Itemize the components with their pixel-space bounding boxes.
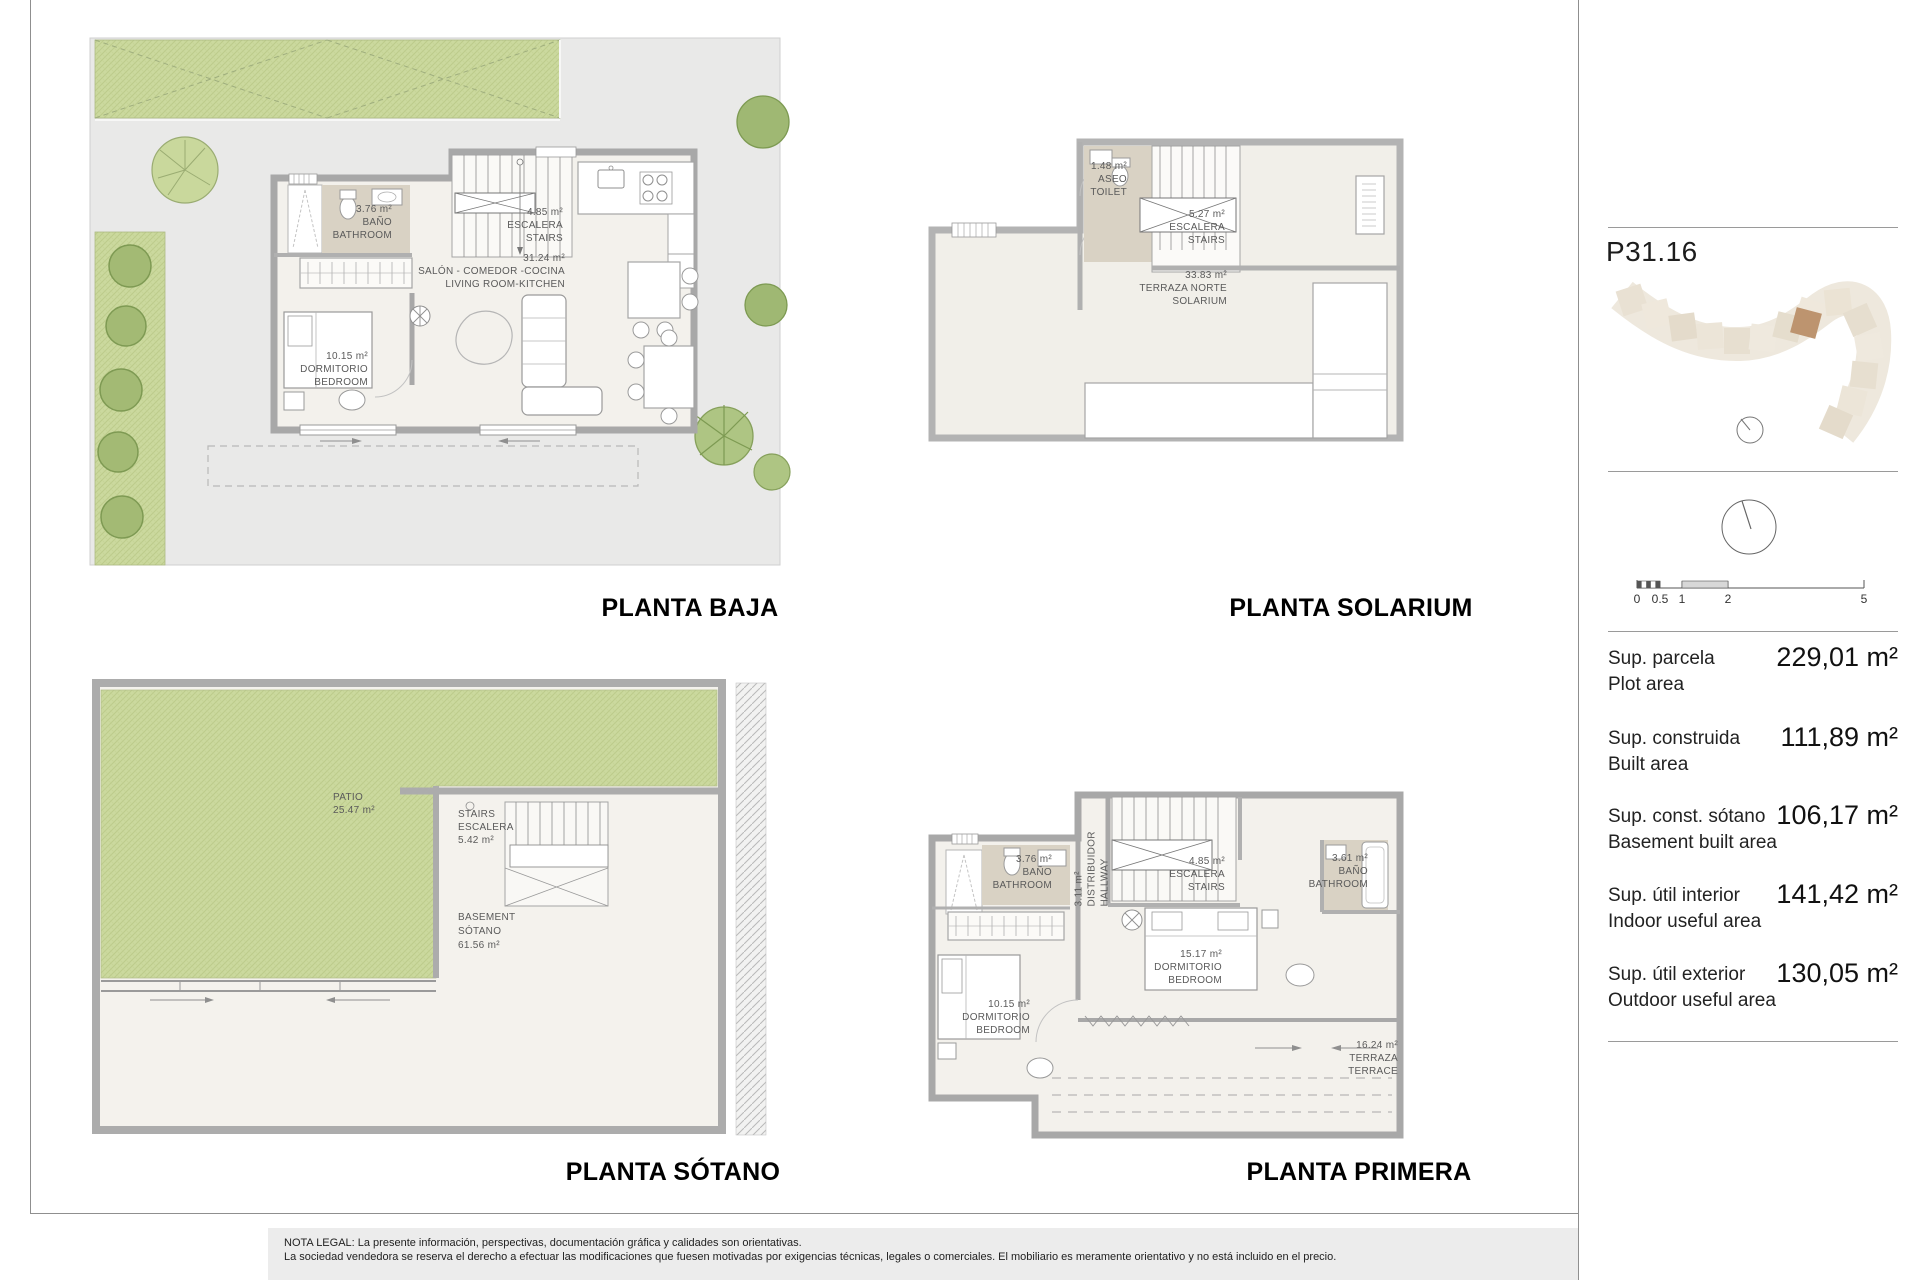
north-compass-icon: [1722, 500, 1776, 554]
room-area: 3.11 m²: [1073, 803, 1086, 907]
legal-line-1: NOTA LEGAL: La presente información, per…: [284, 1236, 1578, 1250]
sidebar-rule-areas-top: [1608, 631, 1898, 632]
room-label-stairs-baja: 4.85 m² ESCALERA STAIRS: [463, 206, 563, 245]
room-name-en: BATHROOM: [292, 229, 392, 242]
room-label-terrace-solarium: 33.83 m² TERRAZA NORTE SOLARIUM: [1077, 269, 1227, 308]
room-area: 5.42 m²: [458, 834, 578, 847]
area-label-en: Outdoor useful area: [1608, 988, 1898, 1014]
room-name-en: BASEMENT: [458, 911, 588, 925]
room-label-livingroom-baja: 31.24 m² SALÓN - COMEDOR -COCINA LIVING …: [385, 252, 565, 291]
room-area: 10.15 m²: [930, 998, 1030, 1011]
area-label-en: Built area: [1608, 752, 1898, 778]
room-area: 1.48 m²: [1037, 160, 1127, 173]
plan-title-primera: PLANTA PRIMERA: [1229, 1158, 1489, 1187]
area-row-indoor: Sup. útil interior Indoor useful area 14…: [1608, 883, 1898, 935]
area-label-en: Basement built area: [1608, 830, 1898, 856]
room-name-es: DORMITORIO: [930, 1011, 1030, 1024]
room-name-es: ASEO: [1037, 173, 1127, 186]
unit-code: P31.16: [1606, 236, 1698, 268]
room-area: 5.27 m²: [1125, 208, 1225, 221]
plan-baja-graphics: [90, 38, 790, 565]
area-label-en: Plot area: [1608, 672, 1898, 698]
room-label-stairs-solarium: 5.27 m² ESCALERA STAIRS: [1125, 208, 1225, 247]
room-name-en: TERRACE: [1298, 1065, 1398, 1078]
room-label-bedroom-main-primera: 15.17 m² DORMITORIO BEDROOM: [1102, 948, 1222, 987]
plan-sotano-graphics: [96, 683, 766, 1135]
room-area: 3.76 m²: [952, 853, 1052, 866]
room-name-en: BEDROOM: [268, 376, 368, 389]
area-value: 229,01 m²: [1776, 642, 1898, 673]
room-name-en: STAIRS: [458, 808, 578, 821]
room-name-es: BAÑO: [1288, 865, 1368, 878]
room-label-stairs-sotano: STAIRS ESCALERA 5.42 m²: [458, 808, 578, 847]
area-row-basement: Sup. const. sótano Basement built area 1…: [1608, 804, 1898, 856]
area-row-plot: Sup. parcela Plot area 229,01 m²: [1608, 646, 1898, 698]
plan-sheet: 3.76 m² BAÑO BATHROOM 4.85 m² ESCALERA S…: [0, 0, 1920, 1280]
room-name-es: ESCALERA: [458, 821, 578, 834]
scale-tick-5: 5: [1847, 592, 1881, 606]
plan-title-baja: PLANTA BAJA: [560, 594, 820, 623]
room-area: 3.76 m²: [292, 203, 392, 216]
room-name-es: SÓTANO: [458, 925, 588, 939]
room-name-es: TERRAZA NORTE: [1077, 282, 1227, 295]
room-name-en: BEDROOM: [930, 1024, 1030, 1037]
scale-tick-1: 1: [1665, 592, 1699, 606]
room-area: 31.24 m²: [385, 252, 565, 265]
area-label-en: Indoor useful area: [1608, 909, 1898, 935]
room-name-es: DISTRIBUIDOR: [1086, 803, 1099, 907]
room-label-bathroom-baja: 3.76 m² BAÑO BATHROOM: [292, 203, 392, 242]
area-row-outdoor: Sup. útil exterior Outdoor useful area 1…: [1608, 962, 1898, 1014]
plan-title-sotano: PLANTA SÓTANO: [543, 1158, 803, 1187]
floor-plans-drawing: [0, 0, 1920, 1280]
room-name-es: DORMITORIO: [1102, 961, 1222, 974]
room-name-en: HALLWAY: [1099, 803, 1112, 907]
room-name-es: BAÑO: [292, 216, 392, 229]
room-label-terrace-primera: 16.24 m² TERRAZA TERRACE: [1298, 1039, 1398, 1078]
room-label-bedroom-baja: 10.15 m² DORMITORIO BEDROOM: [268, 350, 368, 389]
room-label-toilet-solarium: 1.48 m² ASEO TOILET: [1037, 160, 1127, 199]
room-name-en: BATHROOM: [952, 879, 1052, 892]
room-label-basement-sotano: BASEMENT SÓTANO 61.56 m²: [458, 911, 588, 953]
sidebar-site-plan: [1616, 284, 1884, 443]
legal-line-2: La sociedad vendedora se reserva el dere…: [284, 1250, 1578, 1264]
room-area: 4.85 m²: [463, 206, 563, 219]
room-name-en: BATHROOM: [1288, 878, 1368, 891]
room-area: 61.56 m²: [458, 939, 588, 953]
room-area: 10.15 m²: [268, 350, 368, 363]
area-row-built: Sup. construida Built area 111,89 m²: [1608, 726, 1898, 778]
room-name-en: STAIRS: [463, 232, 563, 245]
room-name-es: SALÓN - COMEDOR -COCINA: [385, 265, 565, 278]
room-name-es: PATIO: [333, 791, 453, 804]
room-area: 4.85 m²: [1125, 855, 1225, 868]
plan-title-solarium: PLANTA SOLARIUM: [1221, 594, 1481, 623]
room-area: 33.83 m²: [1077, 269, 1227, 282]
area-value: 111,89 m²: [1780, 722, 1898, 753]
room-name-es: TERRAZA: [1298, 1052, 1398, 1065]
room-name-en: TOILET: [1037, 186, 1127, 199]
legal-note: NOTA LEGAL: La presente información, per…: [268, 1228, 1578, 1280]
area-value: 130,05 m²: [1776, 958, 1898, 989]
room-area: 3.61 m²: [1288, 852, 1368, 865]
room-area: 16.24 m²: [1298, 1039, 1398, 1052]
room-name-en: STAIRS: [1125, 881, 1225, 894]
scale-bar: [1637, 580, 1864, 588]
room-name-es: ESCALERA: [1125, 221, 1225, 234]
room-name-en: BEDROOM: [1102, 974, 1222, 987]
room-area: 25.47 m²: [333, 804, 453, 817]
room-name-es: ESCALERA: [463, 219, 563, 232]
room-name-en: STAIRS: [1125, 234, 1225, 247]
area-value: 106,17 m²: [1776, 800, 1898, 831]
room-name-es: ESCALERA: [1125, 868, 1225, 881]
room-name-es: BAÑO: [952, 866, 1052, 879]
room-name-es: DORMITORIO: [268, 363, 368, 376]
room-name-en: LIVING ROOM-KITCHEN: [385, 278, 565, 291]
sidebar-rule-top: [1608, 227, 1898, 228]
room-label-patio-sotano: PATIO 25.47 m²: [333, 791, 453, 817]
room-label-bedroom-second-primera: 10.15 m² DORMITORIO BEDROOM: [930, 998, 1030, 1037]
room-label-bathroom2-primera: 3.61 m² BAÑO BATHROOM: [1288, 852, 1368, 891]
room-label-bathroom-primera: 3.76 m² BAÑO BATHROOM: [952, 853, 1052, 892]
room-label-hallway-primera: 3.11 m² DISTRIBUIDOR HALLWAY: [1073, 803, 1112, 907]
room-label-stairs-primera: 4.85 m² ESCALERA STAIRS: [1125, 855, 1225, 894]
area-value: 141,42 m²: [1776, 879, 1898, 910]
room-area: 15.17 m²: [1102, 948, 1222, 961]
sidebar-rule-areas-bottom: [1608, 1041, 1898, 1042]
room-name-en: SOLARIUM: [1077, 295, 1227, 308]
scale-tick-2: 2: [1711, 592, 1745, 606]
sidebar-rule-siteplan: [1608, 471, 1898, 472]
